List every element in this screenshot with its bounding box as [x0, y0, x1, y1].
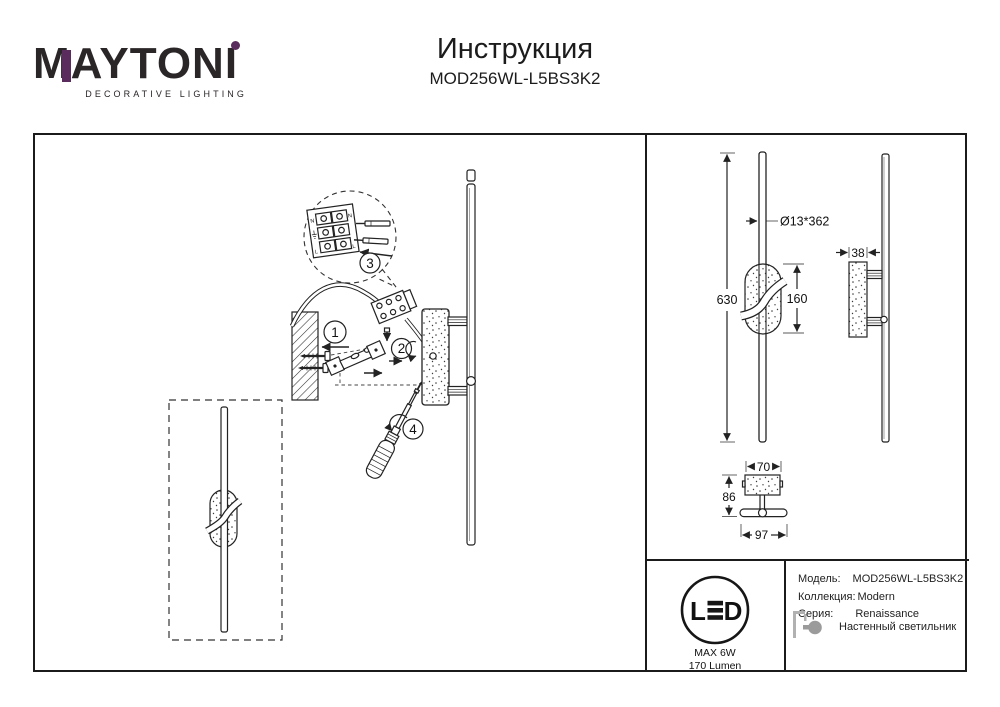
instruction-sheet: MAYTONI DECORATIVE LIGHTING Инструкция M… — [0, 0, 1000, 707]
spec-value: Renaissance — [855, 608, 919, 620]
svg-text:2: 2 — [398, 341, 406, 356]
logo-m-accent-bar — [62, 50, 71, 82]
backplate-top — [745, 475, 780, 495]
spec-row-collection: Коллекция:Modern — [798, 591, 895, 603]
spec-cell: Модель:MOD256WL-L5BS3K2 Коллекция:Modern… — [786, 561, 969, 670]
dimensions-panel: 630 Ø13*362 160 — [647, 135, 969, 670]
spec-label: Модель: — [798, 573, 841, 585]
terminal-n-label: N — [310, 218, 315, 224]
model-number: MOD256WL-L5BS3K2 — [365, 69, 665, 89]
side-view: 38 — [836, 154, 889, 442]
dim-depth: 38 — [851, 246, 865, 260]
max-power: MAX 6W — [694, 647, 736, 659]
arm-bottom — [867, 318, 882, 326]
backplate-side — [849, 262, 867, 337]
dim-shade-height: 160 — [787, 292, 808, 306]
step-4-badge: 4 — [403, 419, 423, 439]
lamp-backplate-side — [422, 309, 467, 405]
terminal-n-label-right: N — [348, 213, 353, 219]
led-badge-cell: L D MAX 6W 170 Lumen — [647, 561, 786, 670]
spec-label: Коллекция: — [798, 591, 856, 603]
assembled-lamp-preview — [169, 400, 282, 640]
svg-text:1: 1 — [331, 325, 339, 340]
wiring-detail-callout: N L N L — [304, 191, 396, 287]
spec-value: Modern — [858, 591, 895, 603]
led-e-three-bars-icon — [708, 601, 724, 620]
arm-bottom — [448, 387, 467, 396]
dim-plate-width: 70 — [757, 460, 771, 474]
svg-text:3: 3 — [366, 256, 374, 271]
luminous-flux: 170 Lumen — [689, 660, 742, 670]
arm-top — [448, 317, 467, 326]
dim-total-depth: 86 — [722, 490, 736, 504]
spec-value: Настенный светильник — [839, 621, 956, 633]
step-3-badge: 3 — [360, 253, 380, 273]
content-frame: N L N L — [33, 133, 967, 672]
page-title: Инструкция — [365, 33, 665, 66]
dim-total-height: 630 — [717, 293, 738, 307]
svg-text:4: 4 — [409, 422, 417, 437]
logo-i-dot-icon — [231, 41, 240, 50]
title-block: Инструкция MOD256WL-L5BS3K2 — [365, 33, 665, 89]
step-1-badge: 1 — [322, 321, 349, 347]
tube-side — [882, 154, 889, 442]
lamp-tube-side — [467, 170, 476, 545]
terminal-block-detail: N L N L — [307, 204, 359, 258]
led-letter-l: L — [690, 596, 706, 626]
arm-top — [867, 271, 882, 279]
installation-diagram: N L N L — [35, 135, 645, 670]
led-badge: L D MAX 6W 170 Lumen — [647, 561, 784, 670]
maytoni-logo: MAYTONI DECORATIVE LIGHTING — [33, 42, 248, 100]
dimension-drawing: 630 Ø13*362 160 — [647, 135, 969, 559]
spec-row-model: Модель:MOD256WL-L5BS3K2 — [798, 573, 963, 585]
top-view: 70 86 97 — [722, 460, 787, 542]
spec-table: L D MAX 6W 170 Lumen Модель:MOD256WL-L5B… — [647, 559, 969, 670]
wall-lamp-icon — [790, 609, 830, 641]
spec-value: MOD256WL-L5BS3K2 — [853, 573, 964, 585]
front-view: 630 Ø13*362 160 — [717, 152, 830, 442]
mounting-bracket — [326, 341, 385, 375]
terminal-block — [371, 288, 417, 324]
dim-tube: Ø13*362 — [780, 215, 829, 229]
installation-diagram-panel: N L N L — [35, 135, 647, 670]
logo-subtitle: DECORATIVE LIGHTING — [85, 89, 247, 99]
spec-row-type: Настенный светильник — [839, 621, 956, 633]
dim-total-width: 97 — [755, 528, 769, 542]
led-letter-d: D — [724, 596, 743, 626]
